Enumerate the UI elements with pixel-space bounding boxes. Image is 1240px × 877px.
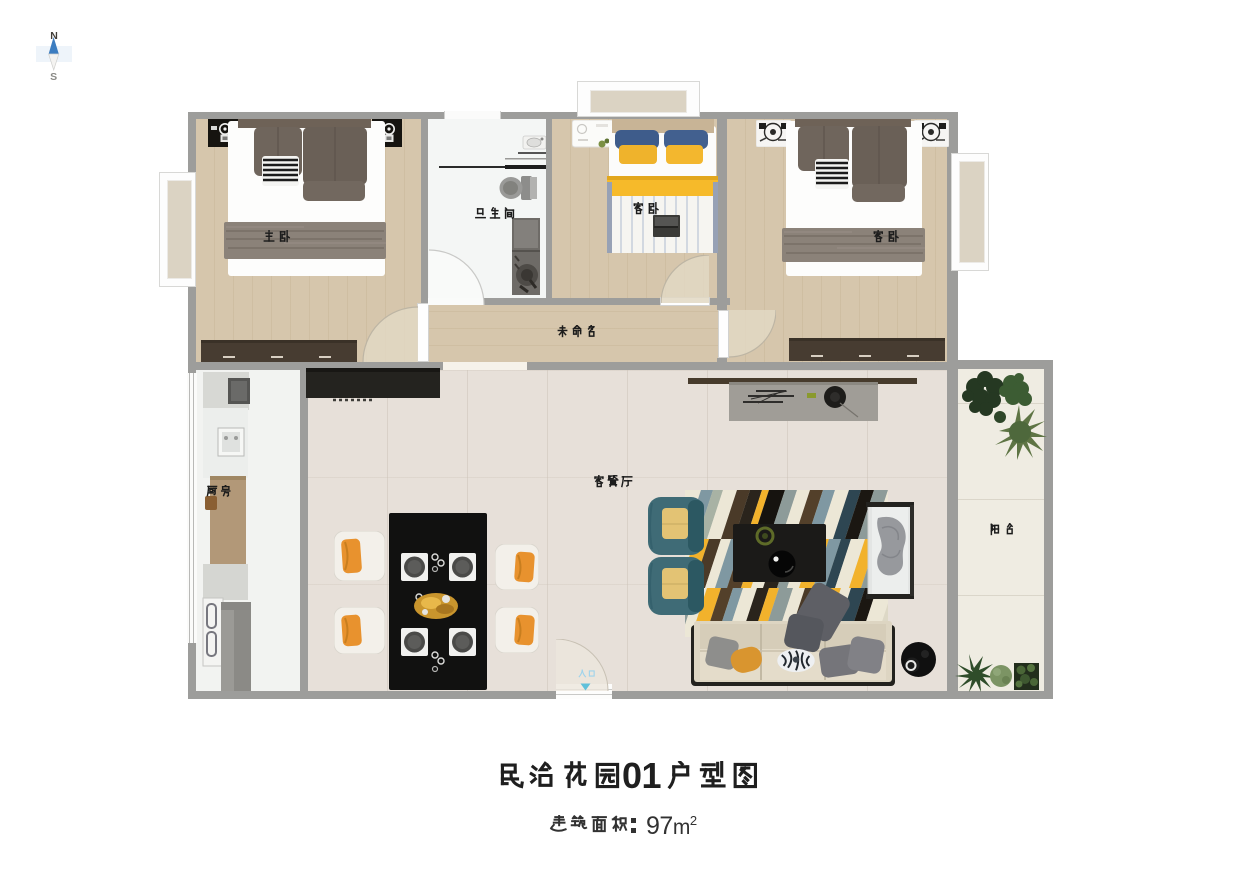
svg-text:S: S: [50, 71, 57, 82]
